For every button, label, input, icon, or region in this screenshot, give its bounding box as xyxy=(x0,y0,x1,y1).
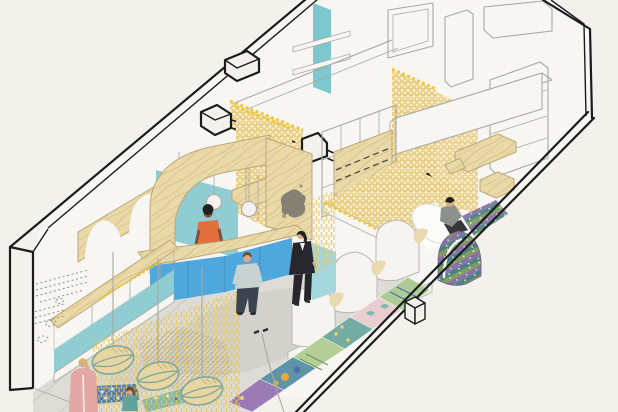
child-body xyxy=(122,396,138,411)
axonometric-interior-drawing xyxy=(0,0,618,412)
fringe-curtain-right xyxy=(312,188,336,275)
suit-leg xyxy=(304,273,312,301)
teal-shelf-panel xyxy=(313,3,331,94)
front-wall-column-cube xyxy=(405,297,425,324)
phone-arm xyxy=(88,366,89,373)
upper-cabinet xyxy=(484,1,552,38)
illustration-canvas xyxy=(0,0,618,412)
tall-cabinet xyxy=(445,10,473,87)
pendant-lamp xyxy=(242,202,257,217)
portal-jamb-panel xyxy=(266,138,312,240)
staff-woman-hair xyxy=(203,204,214,215)
vault-arch xyxy=(376,220,419,281)
